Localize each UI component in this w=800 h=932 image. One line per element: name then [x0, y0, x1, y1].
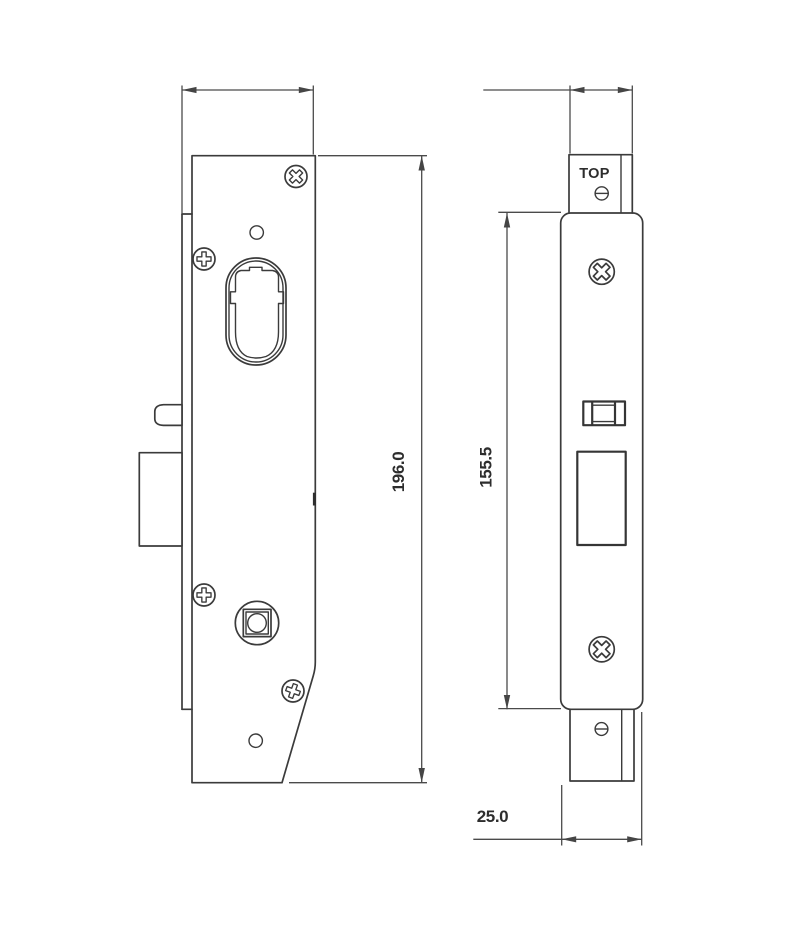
screw-top-right [285, 166, 307, 188]
mortise-lock-drawing: 196.0 TOP [0, 0, 800, 932]
case-width-dimension [182, 86, 313, 214]
faceplate-screw-upper [589, 259, 614, 284]
case-height-label: 196.0 [389, 452, 408, 493]
cylinder-cutout [226, 258, 286, 365]
phillips-screw-upper-left [193, 248, 215, 270]
front-view-dimensions: 155.5 25.0 [473, 86, 641, 846]
latch-cutout [583, 402, 625, 426]
technical-drawing-canvas: 196.0 TOP [0, 0, 800, 932]
deadbolt-cutout [577, 452, 625, 545]
front-view: TOP [561, 155, 643, 781]
faceplate-height-dimension: 155.5 [477, 212, 562, 709]
side-view-dimensions: 196.0 [182, 86, 427, 783]
phillips-screw-bottom-right [282, 680, 304, 702]
bottom-tab [570, 709, 634, 781]
tab-width-dimension [483, 86, 632, 154]
faceplate-height-label: 155.5 [477, 447, 496, 488]
top-marking: TOP [579, 166, 609, 182]
top-tab: TOP [569, 155, 632, 213]
faceplate-width-dimension: 25.0 [473, 712, 641, 846]
phillips-screw-lower-left [193, 584, 215, 606]
bottom-tab-screw-hole [595, 723, 608, 736]
pin-hole-upper [250, 226, 263, 239]
deadbolt-side [139, 453, 182, 546]
faceplate-edge [182, 214, 192, 709]
faceplate-screw-lower [589, 637, 614, 662]
faceplate-width-label: 25.0 [477, 807, 509, 826]
latch-bolt-side [155, 405, 182, 426]
pin-hole-lower [249, 734, 262, 747]
spindle-follower [235, 601, 278, 644]
faceplate-front [561, 213, 643, 709]
top-tab-screw-hole [595, 187, 609, 200]
side-view [139, 156, 315, 783]
